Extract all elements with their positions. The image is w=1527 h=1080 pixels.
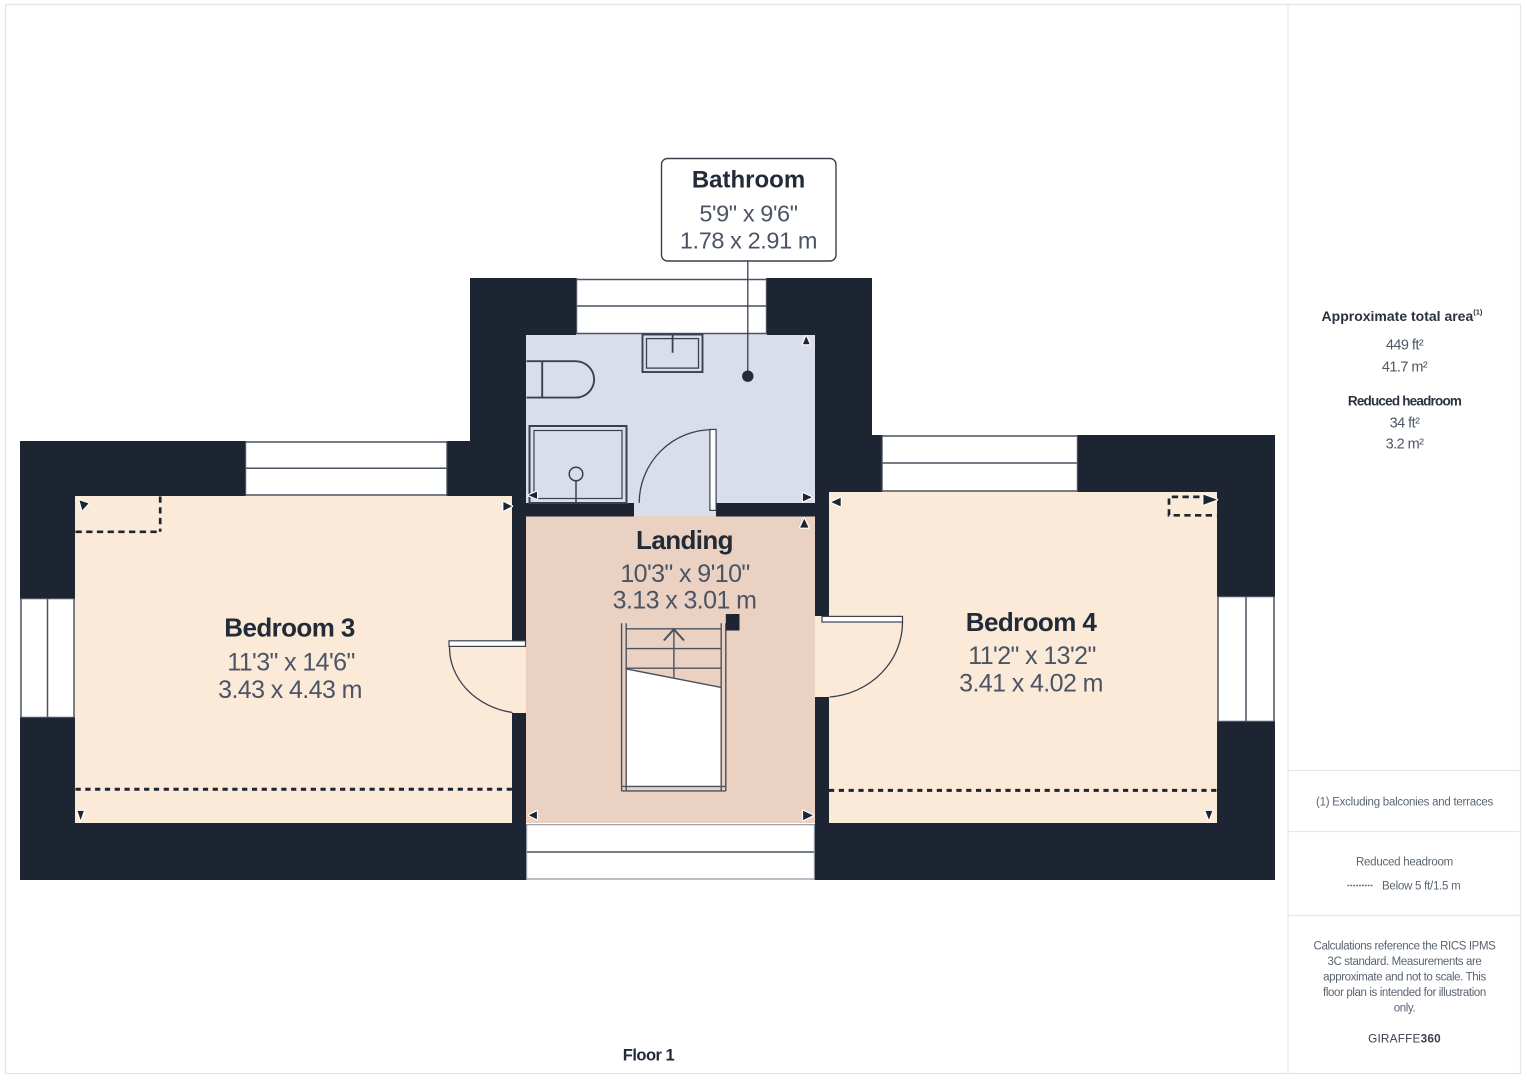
svg-text:approximate and not to scale.: approximate and not to scale. This [1323,972,1486,984]
svg-text:Approximate total area(1): Approximate total area(1) [1322,308,1483,325]
svg-text:449 ft²: 449 ft² [1386,338,1424,354]
svg-text:GIRAFFE360: GIRAFFE360 [1368,1032,1441,1046]
svg-text:Reduced headroom: Reduced headroom [1348,394,1462,409]
svg-text:3.2 m²: 3.2 m² [1386,437,1425,453]
svg-text:Below 5 ft/1.5 m: Below 5 ft/1.5 m [1382,881,1460,893]
svg-text:41.7 m²: 41.7 m² [1382,360,1428,376]
svg-text:1.78 x 2.91 m: 1.78 x 2.91 m [680,228,817,254]
svg-text:34 ft²: 34 ft² [1390,416,1420,432]
svg-text:Bedroom 4: Bedroom 4 [966,607,1098,637]
svg-text:Landing: Landing [636,525,733,555]
svg-text:10'3" x 9'10": 10'3" x 9'10" [620,560,749,588]
svg-text:(1) Excluding balconies and te: (1) Excluding balconies and terraces [1316,797,1494,809]
svg-text:5'9" x 9'6": 5'9" x 9'6" [699,200,797,226]
svg-text:3.41 x 4.02 m: 3.41 x 4.02 m [959,670,1103,698]
svg-text:Bathroom: Bathroom [692,167,805,194]
svg-text:3.43 x 4.43 m: 3.43 x 4.43 m [218,676,362,704]
svg-text:Floor 1: Floor 1 [623,1047,675,1065]
svg-text:11'3" x 14'6": 11'3" x 14'6" [227,649,354,677]
svg-text:Reduced headroom: Reduced headroom [1356,857,1453,869]
svg-text:floor plan is intended for ill: floor plan is intended for illustration [1323,987,1486,999]
svg-text:3.13 x 3.01 m: 3.13 x 3.01 m [613,587,757,615]
svg-text:3C standard. Measurements are: 3C standard. Measurements are [1328,956,1482,968]
svg-text:Calculations reference the RIC: Calculations reference the RICS IPMS [1314,941,1497,953]
svg-text:Bedroom 3: Bedroom 3 [224,613,355,643]
svg-text:11'2" x 13'2": 11'2" x 13'2" [968,642,1095,670]
svg-text:only.: only. [1394,1003,1416,1015]
